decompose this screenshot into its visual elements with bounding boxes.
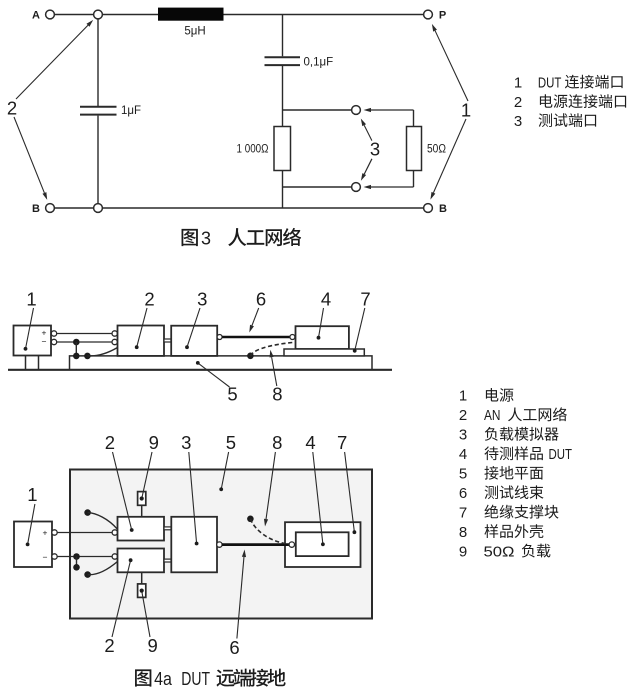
svg-text:3: 3 xyxy=(514,113,522,130)
svg-text:B: B xyxy=(439,203,447,215)
svg-text:0,1μF: 0,1μF xyxy=(304,56,334,68)
svg-text:8: 8 xyxy=(272,384,282,405)
svg-text:9: 9 xyxy=(459,543,467,560)
svg-text:2: 2 xyxy=(104,635,114,656)
svg-text:1: 1 xyxy=(26,289,36,310)
svg-text:3: 3 xyxy=(370,139,380,160)
svg-text:3: 3 xyxy=(201,229,211,249)
svg-text:DUT: DUT xyxy=(538,75,562,91)
svg-text:1: 1 xyxy=(459,388,467,405)
svg-text:9: 9 xyxy=(148,635,158,656)
svg-text:2: 2 xyxy=(514,94,522,111)
svg-text:7: 7 xyxy=(459,504,467,521)
svg-text:3: 3 xyxy=(197,289,207,310)
svg-text:5: 5 xyxy=(226,432,236,453)
svg-text:3: 3 xyxy=(459,427,467,444)
svg-text:7: 7 xyxy=(337,432,347,453)
svg-text:8: 8 xyxy=(272,432,282,453)
svg-text:4: 4 xyxy=(459,446,467,463)
svg-text:50Ω: 50Ω xyxy=(427,143,446,155)
svg-text:1μF: 1μF xyxy=(121,105,141,117)
svg-text:4: 4 xyxy=(321,289,331,310)
svg-text:6: 6 xyxy=(229,637,239,658)
svg-text:50Ω: 50Ω xyxy=(484,543,515,560)
svg-text:2: 2 xyxy=(105,432,115,453)
svg-text:5: 5 xyxy=(459,465,467,482)
svg-text:−: − xyxy=(42,336,47,346)
svg-text:2: 2 xyxy=(7,98,17,119)
svg-text:7: 7 xyxy=(360,289,370,310)
svg-text:6: 6 xyxy=(256,289,266,310)
svg-text:9: 9 xyxy=(149,432,159,453)
svg-text:B: B xyxy=(32,203,40,215)
svg-text:8: 8 xyxy=(459,524,467,541)
svg-text:P: P xyxy=(439,10,446,22)
svg-text:6: 6 xyxy=(459,485,467,502)
svg-text:AN: AN xyxy=(484,408,501,424)
svg-text:5μH: 5μH xyxy=(184,26,205,38)
svg-text:DUT: DUT xyxy=(181,669,210,689)
svg-text:DUT: DUT xyxy=(549,447,573,463)
svg-text:3: 3 xyxy=(181,432,191,453)
svg-text:A: A xyxy=(32,10,40,22)
svg-text:4: 4 xyxy=(305,432,315,453)
svg-text:2: 2 xyxy=(144,289,154,310)
svg-text:2: 2 xyxy=(459,407,467,424)
svg-text:4a: 4a xyxy=(154,669,173,689)
svg-text:1: 1 xyxy=(514,74,522,91)
svg-text:+: + xyxy=(43,527,48,537)
svg-text:1: 1 xyxy=(27,484,37,505)
svg-text:1: 1 xyxy=(461,100,471,121)
svg-text:1 000Ω: 1 000Ω xyxy=(237,143,269,155)
svg-text:−: − xyxy=(43,552,48,562)
